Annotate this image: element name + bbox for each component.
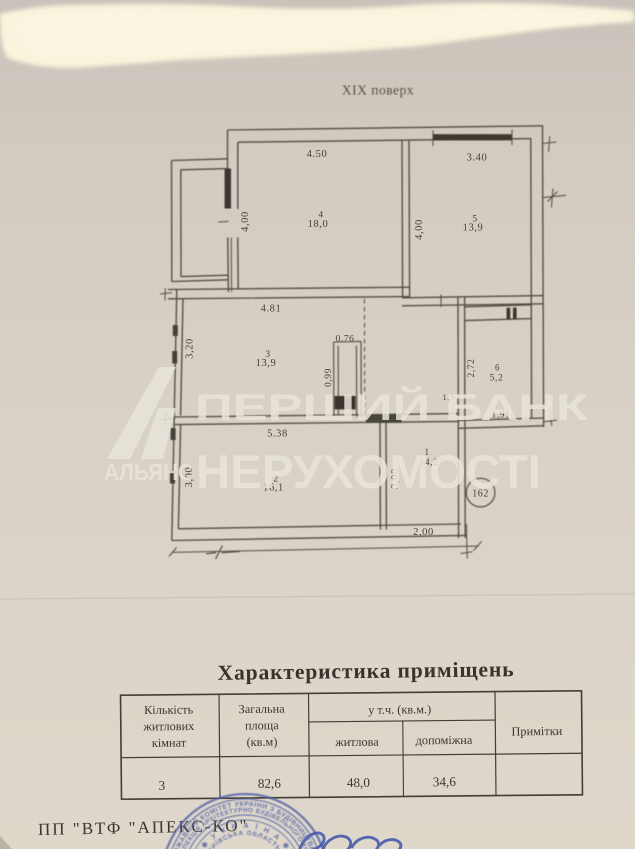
svg-text:13,9: 13,9 bbox=[463, 223, 484, 234]
svg-text:0,99: 0,99 bbox=[324, 368, 334, 387]
svg-text:кімнат: кімнат bbox=[152, 736, 187, 750]
svg-text:13,9: 13,9 bbox=[256, 358, 277, 369]
svg-text:Загальна: Загальна bbox=[239, 702, 286, 716]
svg-text:3.40: 3.40 bbox=[467, 153, 488, 164]
svg-text:ПЕРШИЙ БАНК: ПЕРШИЙ БАНК bbox=[195, 386, 589, 428]
svg-text:3,20: 3,20 bbox=[185, 338, 196, 359]
svg-text:(кв.м): (кв.м) bbox=[246, 735, 277, 749]
svg-text:житлових: житлових bbox=[142, 719, 194, 733]
svg-text:4.81: 4.81 bbox=[261, 304, 282, 315]
svg-text:18,0: 18,0 bbox=[308, 219, 329, 230]
svg-text:0.76: 0.76 bbox=[335, 335, 354, 345]
svg-text:5.38: 5.38 bbox=[267, 429, 288, 440]
svg-text:2,72: 2,72 bbox=[467, 358, 477, 377]
svg-text:допоміжна: допоміжна bbox=[416, 733, 473, 748]
svg-text:48,0: 48,0 bbox=[347, 775, 371, 790]
svg-text:4,00: 4,00 bbox=[240, 211, 251, 232]
svg-text:6: 6 bbox=[495, 363, 500, 373]
svg-text:у т.ч. (кв.м.): у т.ч. (кв.м.) bbox=[368, 702, 431, 717]
svg-text:житлова: житлова bbox=[334, 735, 379, 749]
svg-text:XIX поверх: XIX поверх bbox=[342, 83, 414, 98]
svg-text:Характеристика приміщень: Характеристика приміщень bbox=[217, 657, 514, 685]
svg-text:площа: площа bbox=[245, 718, 279, 732]
svg-text:Примітки: Примітки bbox=[511, 724, 562, 738]
svg-text:АЛЬЯНС: АЛЬЯНС bbox=[104, 459, 193, 485]
svg-text:82,6: 82,6 bbox=[258, 776, 282, 791]
svg-text:34,6: 34,6 bbox=[433, 774, 457, 789]
svg-text:2,00: 2,00 bbox=[413, 527, 434, 538]
svg-text:Кількість: Кількість bbox=[144, 702, 194, 716]
svg-text:3: 3 bbox=[159, 778, 166, 793]
svg-text:4.50: 4.50 bbox=[307, 149, 328, 160]
svg-text:5,2: 5,2 bbox=[490, 374, 504, 384]
svg-text:НЕРУХОМОСТІ: НЕРУХОМОСТІ bbox=[196, 445, 541, 498]
svg-text:4,00: 4,00 bbox=[414, 219, 425, 240]
